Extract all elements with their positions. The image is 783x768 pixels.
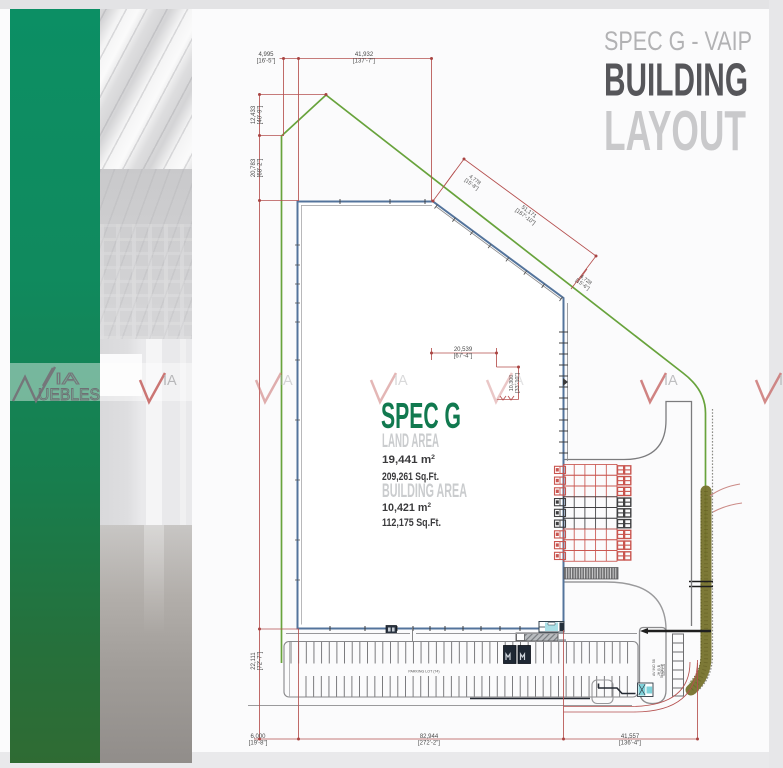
svg-text:IA: IA xyxy=(779,373,783,389)
svg-text:IA: IA xyxy=(279,373,293,389)
svg-text:6,000: 6,000 xyxy=(250,734,266,740)
svg-text:IA: IA xyxy=(163,373,177,389)
svg-text:4,995: 4,995 xyxy=(258,52,274,58)
svg-text:IA: IA xyxy=(394,373,408,389)
svg-text:BUILDING AREA: BUILDING AREA xyxy=(382,481,467,502)
svg-text:PARKING LOT (74): PARKING LOT (74) xyxy=(408,670,439,674)
svg-text:[72'-7"]: [72'-7"] xyxy=(258,651,264,670)
svg-text:41,932: 41,932 xyxy=(355,52,374,58)
svg-text:10,421 m2: 10,421 m2 xyxy=(382,502,431,514)
svg-text:[136'-4"]: [136'-4"] xyxy=(619,741,641,747)
svg-text:41,557: 41,557 xyxy=(621,734,640,740)
svg-text:[16'-5"]: [16'-5"] xyxy=(257,59,276,65)
svg-text:22,111: 22,111 xyxy=(251,652,257,670)
svg-text:12,433: 12,433 xyxy=(251,105,257,124)
svg-text:IA: IA xyxy=(510,373,524,389)
svg-text:[272'-2"]: [272'-2"] xyxy=(418,741,440,747)
svg-text:LAYOUT: LAYOUT xyxy=(604,99,746,163)
svg-text:[137'-7"]: [137'-7"] xyxy=(353,59,375,65)
svg-text:UEBLES: UEBLES xyxy=(38,385,100,404)
svg-text:IA: IA xyxy=(664,373,678,389)
svg-text:19,441 m2: 19,441 m2 xyxy=(382,454,435,466)
svg-text:82,944: 82,944 xyxy=(420,734,439,740)
svg-text:[68'-2"]: [68'-2"] xyxy=(258,158,264,177)
svg-text:20,783: 20,783 xyxy=(251,158,257,177)
svg-text:[67'-4"]: [67'-4"] xyxy=(454,354,473,360)
svg-text:LAND AREA: LAND AREA xyxy=(382,431,439,452)
svg-text:[19'-8"]: [19'-8"] xyxy=(249,741,268,747)
svg-text:BUILDING: BUILDING xyxy=(604,54,748,106)
svg-text:5HOB3H: 5HOB3H xyxy=(660,663,664,678)
svg-text:AV IND 58: AV IND 58 xyxy=(652,659,656,676)
svg-text:112,175 Sq.Ft.: 112,175 Sq.Ft. xyxy=(382,517,441,529)
svg-text:SPEC G - VAIP: SPEC G - VAIP xyxy=(604,26,752,56)
svg-text:[40'-9"]: [40'-9"] xyxy=(258,105,264,124)
svg-text:SPEC G: SPEC G xyxy=(381,395,461,436)
svg-text:20,539: 20,539 xyxy=(454,347,473,353)
